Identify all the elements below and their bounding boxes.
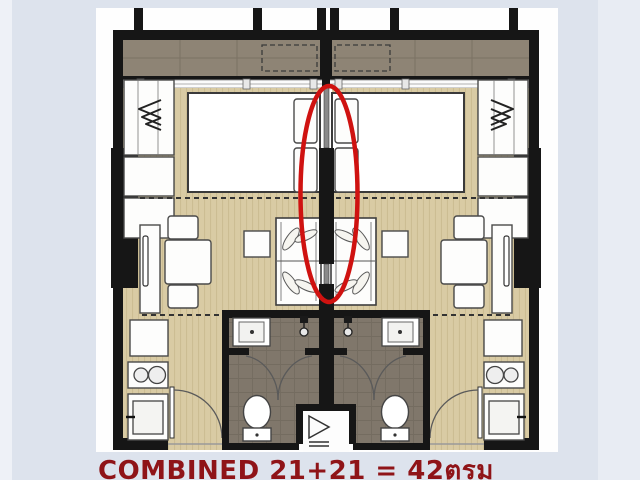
service-shaft xyxy=(296,404,356,452)
caption: COMBINED 21+21 = 42ตรม xyxy=(98,450,598,480)
screenshot: COMBINED 21+21 = 42ตรม xyxy=(0,0,640,480)
wall-stub xyxy=(317,8,326,34)
caption-text: COMBINED 21+21 = 42ตรม xyxy=(98,456,494,480)
wall-stub xyxy=(330,8,339,34)
floor-plan xyxy=(0,0,640,480)
